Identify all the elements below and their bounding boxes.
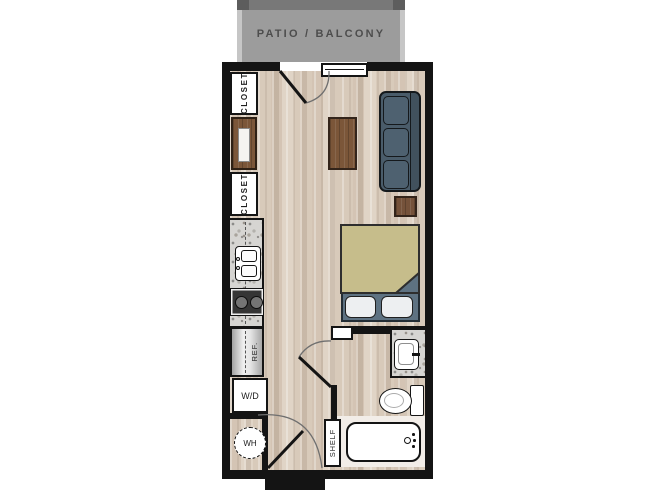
sink-faucet-knob-top (236, 257, 240, 261)
wall-bath-door-stub (331, 385, 337, 419)
builtin-cabinet-shelf (238, 128, 250, 162)
water-heater: WH (234, 427, 266, 459)
sofa-cushion-2 (383, 128, 409, 157)
sofa-backrest (410, 93, 419, 190)
wall-top-right (367, 62, 433, 71)
shelf-label: SHELF (328, 429, 337, 457)
coffee-table (328, 117, 357, 170)
refrigerator: REF. (230, 327, 264, 377)
stove-burner-right (250, 296, 263, 309)
end-table (394, 196, 417, 217)
bath-sink (394, 339, 419, 370)
shelf-niche: SHELF (324, 419, 341, 467)
patio-label: PATIO / BALCONY (237, 28, 405, 42)
toilet-bowl (379, 388, 412, 414)
sink-faucet-knob-bottom (236, 266, 240, 270)
closet-bottom-label: CLOSET (240, 173, 249, 215)
sink-basin-top (241, 250, 257, 262)
stove-burner-left (235, 296, 248, 309)
refrigerator-label: REF. (250, 342, 259, 361)
kitchen-sink (235, 246, 261, 281)
water-heater-label: WH (243, 439, 256, 448)
tub-faucet-drain (404, 437, 411, 444)
bathtub (346, 422, 421, 462)
entry-landing (265, 470, 325, 490)
bed-pillow-right (381, 296, 413, 318)
stove-cooktop (230, 288, 264, 316)
wall-bottom-left (222, 470, 268, 479)
bath-sink-faucet (412, 353, 420, 356)
sofa-cushion-3 (383, 160, 409, 189)
wall-top-left (222, 62, 280, 71)
builtin-cabinet (231, 117, 257, 170)
closet-top-label: CLOSET (240, 72, 249, 114)
sink-basin-bottom (241, 265, 257, 277)
toilet-bowl-inner (384, 393, 404, 408)
patio-band-cap-right (393, 0, 405, 10)
wall-bottom-right (322, 470, 433, 479)
tub-faucet-dot-2 (413, 439, 416, 442)
closet-top: CLOSET (230, 72, 258, 115)
wall-right (425, 62, 433, 479)
refrigerator-label-wrap: REF. (246, 329, 262, 375)
tub-faucet-dot-1 (412, 433, 415, 436)
sliding-door-track (325, 69, 364, 70)
sofa (379, 91, 421, 192)
washer-dryer: W/D (232, 378, 268, 413)
floorplan: PATIO / BALCONY CLOSET CLOSET (0, 0, 650, 490)
bath-door-jamb (331, 326, 353, 340)
closet-bottom: CLOSET (230, 172, 258, 216)
tub-faucet-dot-3 (412, 445, 415, 448)
toilet-tank (410, 385, 424, 416)
sofa-cushion-1 (383, 96, 409, 125)
patio-top-band (237, 0, 405, 10)
bed-pillow-left (345, 296, 376, 318)
patio-band-cap-left (237, 0, 249, 10)
washer-dryer-label: W/D (241, 391, 259, 401)
patio-sliding-door (321, 63, 368, 77)
